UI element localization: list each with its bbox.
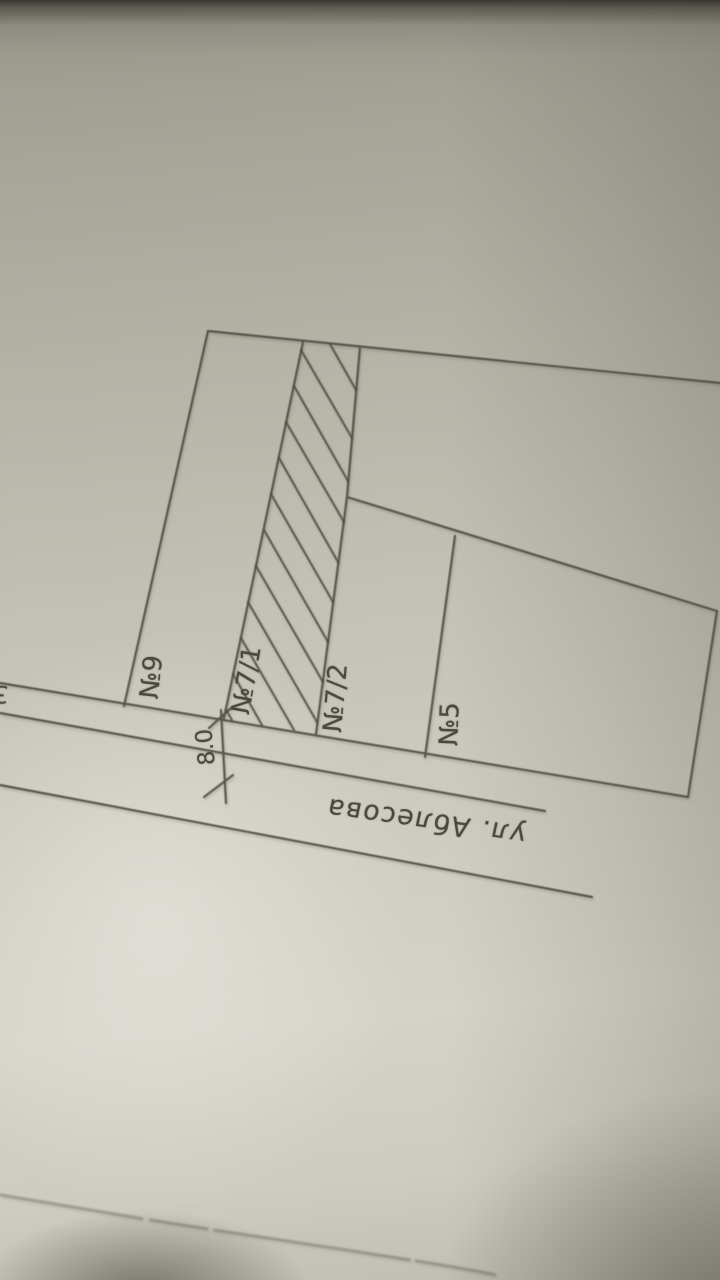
plot9-left-edge-line [124,331,208,706]
clipped-edge-character: 3 [0,680,9,709]
plan-line-drawing [0,0,720,1280]
plot5-right-boundary-line [688,611,717,797]
dimension-tick-bottom [204,775,233,797]
road-width-dimension-label: 8.0 [191,727,221,766]
plot-label-7-2: №7/2 [318,662,354,733]
paper-crease-line [0,1194,496,1275]
plot7-2-top-boundary-line [347,497,717,611]
plan-drawing: №9 №7/1 №7/2 №5 8.0 ул. Аблесова 3 [0,0,720,1280]
plot-label-5: №5 [434,702,466,747]
plot-label-9: №9 [135,654,169,700]
photo-of-site-plan: №9 №7/1 №7/2 №5 8.0 ул. Аблесова 3 [0,0,720,1280]
dimension-line [221,710,226,803]
block-top-edge-line [208,331,720,383]
